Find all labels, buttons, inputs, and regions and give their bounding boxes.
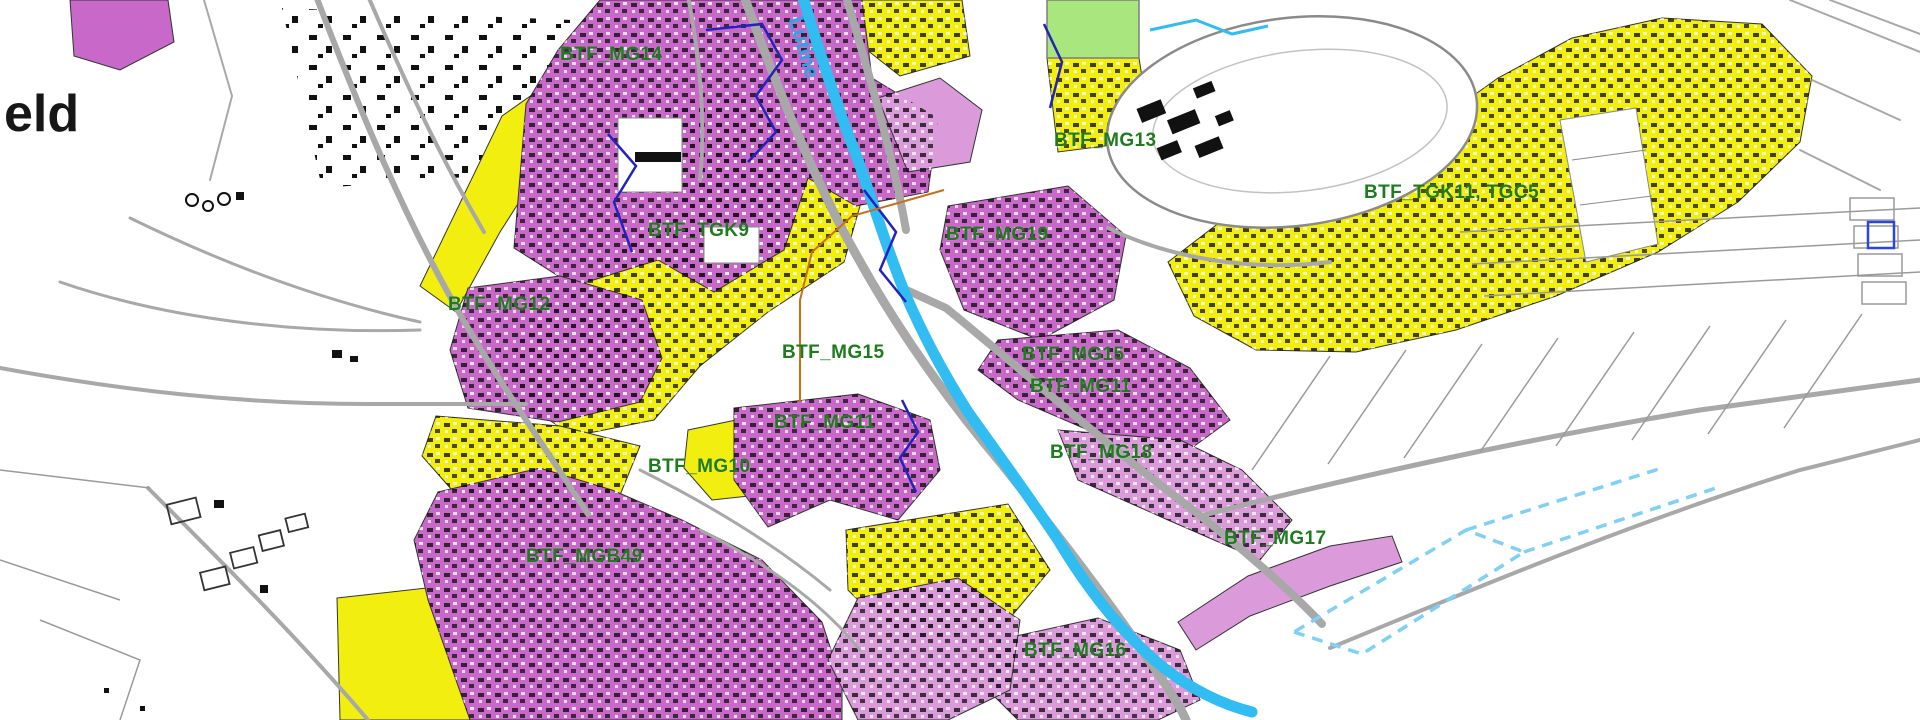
map-viewport: eld Lutine BTF_MG14 BTF_MG13 BTF_TGK11, … — [0, 0, 1920, 720]
green-open-space — [1047, 0, 1139, 58]
map-canvas — [0, 0, 1920, 720]
